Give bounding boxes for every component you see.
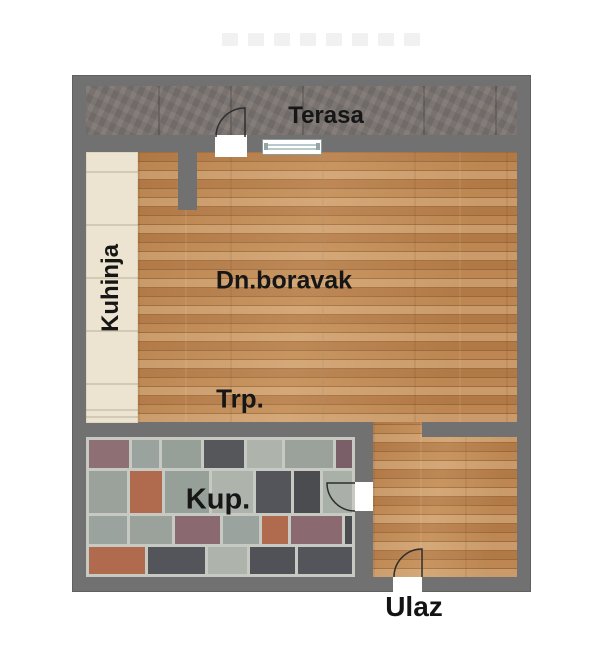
terrace-grout-line: [495, 86, 497, 135]
bathroom-tile: [130, 516, 172, 544]
kitchen-grout-line: [86, 383, 138, 385]
window-end-cap: [264, 143, 268, 150]
dining-label: Trp.: [216, 384, 264, 415]
living-room-label: Dn.boravak: [216, 267, 352, 296]
bathroom-door-opening: [355, 482, 373, 511]
bathroom-tile: [130, 471, 162, 513]
floorplan-outer-walls: Terasa Kuhinja Dn.boravak Trp.: [72, 75, 531, 592]
kitchen-counter-line: [86, 409, 138, 411]
bathroom-tile: [298, 547, 352, 574]
bathroom-tile: [89, 516, 127, 544]
bathroom-tile: [323, 471, 352, 513]
bathroom-tile: [162, 440, 201, 468]
window-end-cap: [316, 143, 320, 150]
window-glass-line: [267, 148, 317, 150]
bathroom-tile: [285, 440, 333, 468]
bathroom-tile: [247, 440, 282, 468]
terrace-door-opening: [215, 135, 247, 157]
window-glass-line: [267, 144, 317, 146]
bathroom-tile: [132, 440, 159, 468]
kitchen-label: Kuhinja: [97, 244, 125, 332]
floorplan-canvas: Terasa Kuhinja Dn.boravak Trp.: [0, 0, 600, 662]
bathroom-tile: [291, 516, 342, 544]
interior-wall-stub-right: [422, 422, 517, 437]
terrace-grout-line: [230, 86, 232, 135]
bathroom-tile: [204, 440, 244, 468]
kitchen-grout-line: [86, 171, 138, 173]
bathroom-tile: [294, 471, 320, 513]
bathroom-tile: [256, 471, 291, 513]
window-icon: [262, 139, 322, 155]
bathroom-tile: [250, 547, 295, 574]
bathroom-tile: [175, 516, 220, 544]
watermark-tiles: [222, 33, 432, 47]
bathroom-tile: [345, 516, 352, 544]
bathroom-label: Kup.: [186, 484, 250, 517]
bathroom-tile: [89, 547, 145, 574]
entrance-door-opening: [393, 577, 422, 592]
bathroom-tile: [89, 440, 129, 468]
kitchen-counter-line: [86, 416, 138, 418]
terrace-grout-line: [158, 86, 160, 135]
interior-wall-stub-top: [178, 152, 197, 210]
bathroom-tile: [89, 471, 127, 513]
bathroom-tile: [208, 547, 247, 574]
bathroom-tile: [223, 516, 259, 544]
terrace-label: Terasa: [288, 102, 364, 130]
bathroom-tile: [336, 440, 352, 468]
terrace-grout-line: [423, 86, 425, 135]
kitchen-grout-line: [86, 224, 138, 226]
bathroom-tile: [262, 516, 288, 544]
entrance-label: Ulaz: [385, 591, 443, 623]
bathroom-tile: [148, 547, 205, 574]
room-entrance-hall: [373, 422, 517, 577]
